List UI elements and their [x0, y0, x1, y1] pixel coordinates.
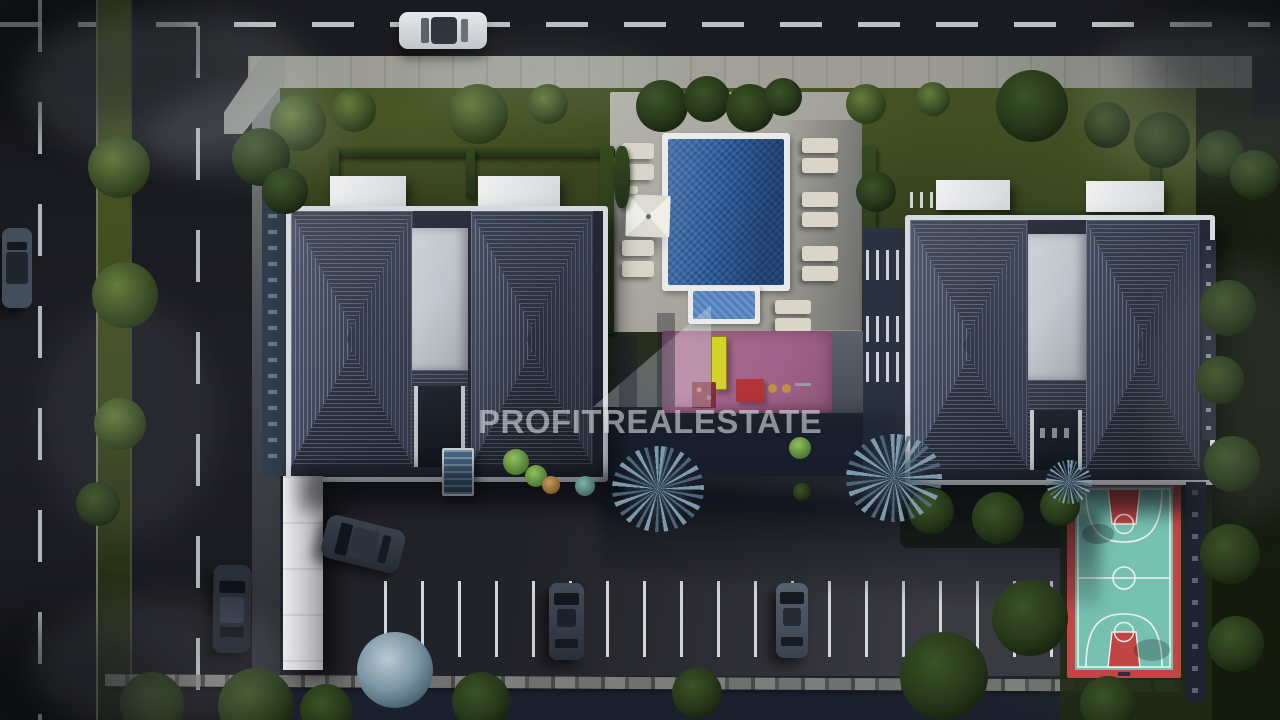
tree — [996, 70, 1068, 142]
car-rear-window — [377, 535, 392, 564]
sun-lounger — [775, 300, 811, 314]
wall-window-ticks — [1192, 490, 1198, 694]
tree — [846, 84, 886, 124]
sun-lounger — [802, 138, 838, 153]
car-roof — [6, 252, 28, 284]
palm-tree — [612, 446, 704, 532]
palm-tree — [846, 434, 942, 522]
bush — [575, 476, 595, 496]
fog-wisp — [420, 40, 660, 120]
sun-lounger — [802, 192, 838, 207]
car-roof — [783, 608, 801, 626]
cypress-tree — [614, 146, 630, 208]
sun-lounger — [802, 212, 838, 227]
rooftop-structure — [1086, 181, 1164, 212]
car-windshield — [7, 242, 27, 250]
logo-triangle — [593, 305, 711, 407]
tree — [916, 82, 950, 116]
spring-rider — [782, 384, 791, 393]
car-windshield — [780, 592, 804, 604]
pool-umbrella — [625, 194, 670, 238]
car-roof — [431, 17, 457, 44]
hedge-row — [466, 148, 475, 198]
profit-real-estate-logo — [593, 299, 711, 409]
sun-lounger — [802, 266, 838, 281]
balcony-row — [866, 316, 902, 342]
sun-lounger — [802, 158, 838, 173]
hoop-bottom — [1118, 672, 1130, 676]
car-parked-center — [549, 583, 584, 660]
rooftop-structure — [936, 180, 1010, 210]
car-roof — [348, 527, 380, 562]
sun-lounger — [622, 261, 654, 277]
rooftop-structure — [478, 176, 560, 208]
tree — [684, 76, 730, 122]
bush — [542, 476, 560, 494]
tree — [1200, 524, 1260, 584]
car-windshield — [219, 581, 245, 593]
car-rear-window — [461, 19, 468, 42]
car-roof — [557, 609, 576, 627]
car-windshield — [421, 18, 429, 43]
logo-slot — [657, 313, 675, 407]
car-rear-window — [555, 639, 578, 648]
tree — [972, 492, 1024, 544]
pool-water — [668, 139, 784, 285]
sun-lounger — [622, 240, 654, 256]
tree — [764, 78, 802, 116]
car-road-left-upper — [2, 228, 32, 308]
silver-tree — [357, 632, 433, 708]
tree — [900, 632, 988, 720]
tree — [856, 172, 896, 212]
logo-slot — [619, 335, 637, 407]
sun-lounger — [775, 318, 811, 332]
tree — [672, 668, 722, 718]
fog-wisp — [150, 90, 350, 180]
car-white-road-top — [399, 12, 487, 49]
tree-shadow — [1134, 639, 1170, 661]
shadow-building-left — [300, 468, 610, 510]
bush — [793, 483, 811, 501]
palm-tree — [1046, 460, 1092, 504]
aerial-site-render: PROFITREALESTATE — [0, 0, 1280, 720]
seesaw — [795, 383, 811, 386]
court-side-wall — [1186, 482, 1206, 702]
car-windshield — [554, 593, 579, 605]
car-parked-right — [776, 583, 808, 658]
rooftop-steps — [910, 192, 934, 208]
watermark-text: PROFITREALESTATE — [478, 403, 808, 443]
tree — [1208, 616, 1264, 672]
spring-rider — [768, 384, 777, 393]
playground-platform — [736, 379, 764, 402]
fog-wisp — [30, 600, 290, 720]
balcony-row — [866, 250, 902, 280]
balcony-row — [866, 352, 902, 382]
sun-lounger — [802, 246, 838, 261]
tree — [992, 580, 1068, 656]
fog-wisp — [40, 300, 220, 540]
umbrella-pole — [646, 214, 651, 219]
rooftop-structure — [330, 176, 406, 208]
car-rear-window — [781, 637, 803, 646]
